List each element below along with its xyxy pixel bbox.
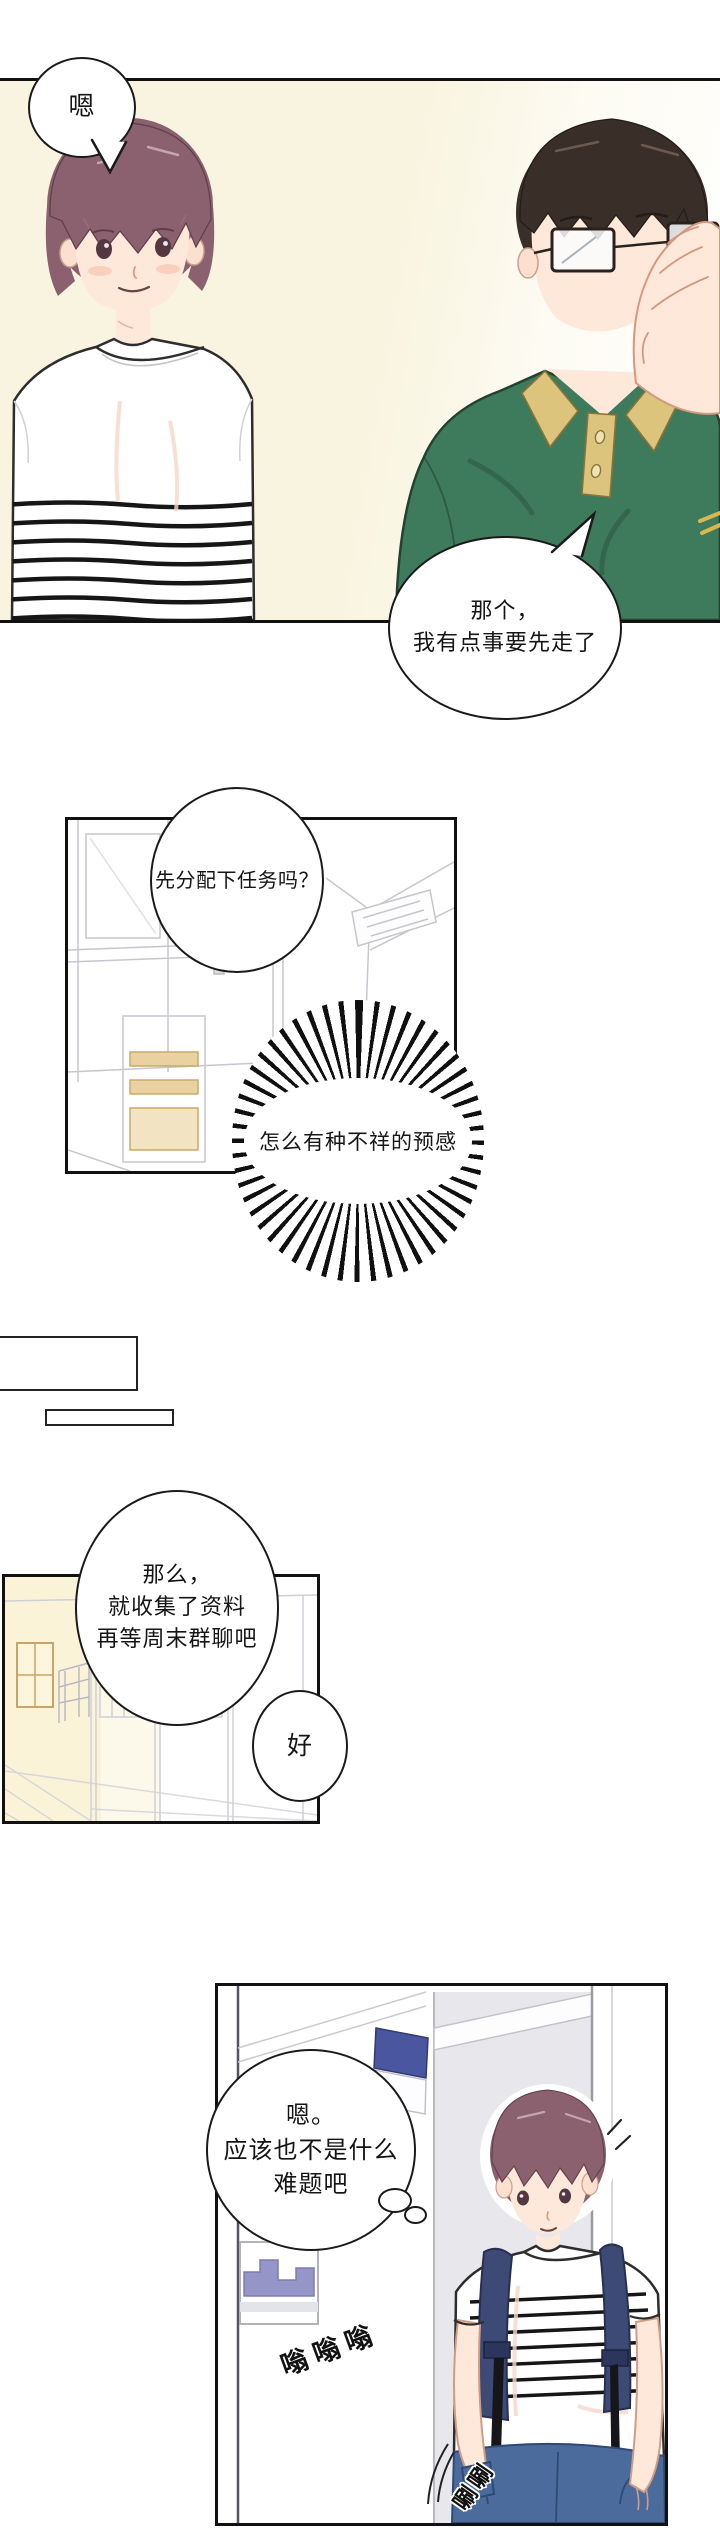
speech-bubble-ok-text: 好 — [287, 1728, 313, 1764]
speech-bubble-plan-line2: 就收集了资料 — [108, 1592, 246, 1624]
speech-bubble-plan: 那么， 就收集了资料 再等周末群聊吧 — [75, 1490, 279, 1726]
speech-bubble-assign-text: 先分配下任务吗？ — [155, 866, 319, 895]
burst-bubble-text: 怎么有种不祥的预感 — [259, 1126, 457, 1156]
speech-bubble-leave: 那个， 我有点事要先走了 — [388, 536, 622, 720]
student-a-figure — [4, 118, 254, 620]
burst-bubble: 怎么有种不祥的预感 — [244, 1078, 472, 1204]
speech-bubble-plan-line3: 再等周末群聊吧 — [96, 1624, 257, 1656]
window-poster-frame — [240, 2242, 318, 2324]
speech-bubble-hm-tail — [84, 140, 132, 176]
speech-bubble-leave-line2: 我有点事要先走了 — [413, 628, 597, 660]
placeholder-box-1 — [0, 1336, 138, 1391]
speech-bubble-leave-line1: 那个， — [470, 596, 539, 628]
speech-bubble-leave-tail — [544, 512, 600, 556]
thought-bubble-line1: 嗯。 — [286, 2098, 336, 2133]
placeholder-box-2 — [45, 1409, 174, 1426]
thought-bubble-dot-small — [404, 2206, 427, 2224]
speech-bubble-ok: 好 — [252, 1690, 348, 1802]
comic-page: 嗯 那个， 我有点事要先走了 — [0, 0, 720, 2548]
boy-backpack-figure — [452, 2084, 665, 2523]
thought-bubble: 嗯。 应该也不是什么 难题吧 — [206, 2049, 416, 2251]
speech-bubble-assign: 先分配下任务吗？ — [150, 787, 324, 973]
sfx-swish-motion-lines — [418, 2442, 458, 2518]
thought-bubble-line3: 难题吧 — [274, 2167, 349, 2202]
speech-bubble-hm-text: 嗯 — [68, 89, 95, 127]
thought-bubble-line2: 应该也不是什么 — [224, 2133, 399, 2168]
door-sign-blue — [374, 2028, 428, 2078]
speech-bubble-plan-line1: 那么， — [142, 1560, 211, 1592]
